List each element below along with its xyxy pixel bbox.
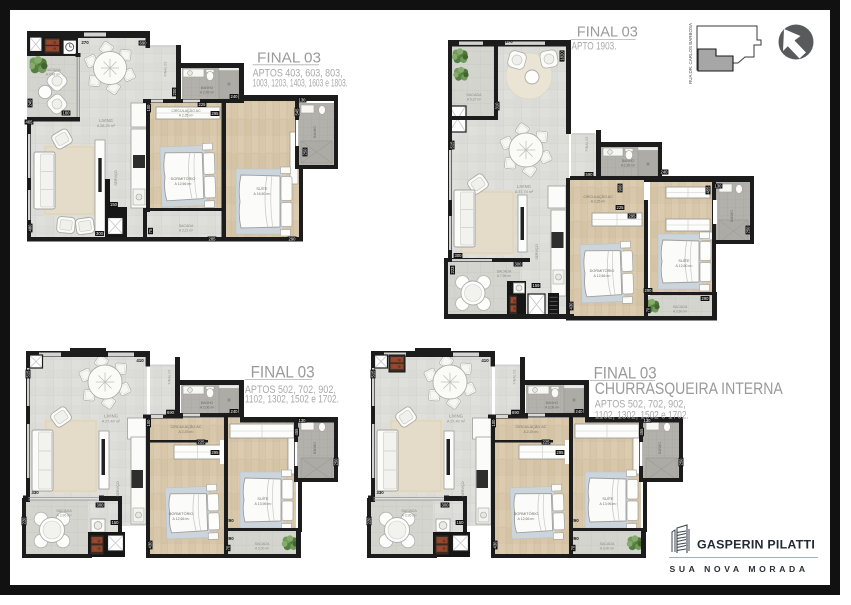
- svg-text:A 3,21 m²: A 3,21 m²: [179, 229, 194, 233]
- svg-text:SACADA: SACADA: [497, 270, 512, 274]
- svg-text:330: 330: [31, 490, 39, 495]
- svg-text:APTO 1903.: APTO 1903.: [572, 41, 617, 53]
- svg-text:LIVING: LIVING: [104, 414, 118, 419]
- svg-text:SACADA: SACADA: [401, 509, 417, 513]
- svg-text:A 12,60 m²: A 12,60 m²: [676, 264, 694, 268]
- svg-text:130: 130: [299, 98, 307, 103]
- svg-text:70: 70: [226, 545, 231, 550]
- svg-text:590: 590: [586, 172, 594, 177]
- svg-text:290: 290: [702, 296, 710, 301]
- svg-text:220: 220: [367, 517, 372, 525]
- svg-text:A 12,66 m²: A 12,66 m²: [173, 517, 191, 521]
- svg-text:430: 430: [493, 541, 498, 549]
- svg-text:70: 70: [646, 307, 651, 312]
- svg-text:295: 295: [212, 111, 220, 116]
- svg-text:LIVING: LIVING: [99, 118, 113, 123]
- svg-text:130: 130: [715, 184, 723, 189]
- svg-text:430: 430: [148, 541, 153, 549]
- svg-text:BANHO: BANHO: [313, 126, 317, 138]
- svg-text:225: 225: [617, 205, 625, 210]
- svg-text:SUA NOVA MORADA: SUA NOVA MORADA: [670, 564, 809, 574]
- svg-text:LIVING: LIVING: [449, 414, 463, 419]
- svg-text:270: 270: [505, 39, 513, 44]
- svg-text:BANHO: BANHO: [201, 86, 214, 90]
- svg-text:SACADA: SACADA: [179, 224, 194, 228]
- svg-text:FINAL 03: FINAL 03: [257, 50, 321, 67]
- svg-text:BANHO: BANHO: [622, 159, 635, 163]
- svg-text:SACADA: SACADA: [45, 68, 61, 72]
- svg-text:SERVIÇO: SERVIÇO: [535, 244, 539, 260]
- svg-text:455: 455: [639, 428, 644, 436]
- svg-text:159: 159: [533, 283, 541, 288]
- svg-text:SUÍTE: SUÍTE: [256, 187, 268, 191]
- svg-text:FINAL 03: FINAL 03: [164, 62, 168, 77]
- svg-text:290: 290: [645, 288, 653, 293]
- svg-text:290: 290: [289, 237, 297, 242]
- svg-text:FINAL 03: FINAL 03: [577, 24, 638, 41]
- svg-text:130: 130: [299, 418, 307, 423]
- svg-text:455: 455: [294, 428, 299, 436]
- svg-text:A 2,25 m²: A 2,25 m²: [524, 430, 540, 434]
- svg-text:FINAL 03: FINAL 03: [513, 370, 517, 385]
- svg-text:1003, 1203, 1403, 1603 e 1803.: 1003, 1203, 1403, 1603 e 1803.: [253, 77, 348, 89]
- svg-text:SUÍTE: SUÍTE: [257, 497, 269, 501]
- svg-text:150: 150: [110, 202, 118, 207]
- svg-text:295: 295: [629, 214, 637, 219]
- svg-text:A 4,48 m²: A 4,48 m²: [46, 73, 61, 77]
- svg-text:480: 480: [28, 224, 33, 232]
- svg-text:225: 225: [199, 102, 207, 107]
- svg-text:245: 245: [28, 99, 33, 107]
- svg-text:A 2,06 m²: A 2,06 m²: [200, 406, 215, 410]
- svg-text:300: 300: [442, 503, 450, 508]
- svg-text:A 12,66 m²: A 12,66 m²: [518, 517, 536, 521]
- svg-text:A 12,66 m²: A 12,66 m²: [175, 182, 193, 186]
- svg-text:250: 250: [746, 226, 751, 234]
- svg-text:A 16,50 m²: A 16,50 m²: [254, 192, 272, 196]
- svg-text:430: 430: [569, 302, 574, 310]
- svg-text:455: 455: [706, 186, 711, 194]
- svg-text:SERVIÇO: SERVIÇO: [461, 481, 465, 497]
- svg-text:DORMITÓRIO: DORMITÓRIO: [514, 511, 539, 516]
- svg-text:A 2,95 m²: A 2,95 m²: [200, 91, 215, 95]
- svg-text:SERVIÇO: SERVIÇO: [116, 481, 120, 497]
- svg-text:A 26,25 m²: A 26,25 m²: [97, 124, 116, 128]
- svg-text:515: 515: [26, 370, 31, 378]
- svg-text:A 27,40 m²: A 27,40 m²: [102, 419, 121, 423]
- svg-text:DORMITÓRIO: DORMITÓRIO: [590, 268, 615, 273]
- svg-text:FINAL 03: FINAL 03: [585, 137, 589, 152]
- svg-text:A 7,96 m²: A 7,96 m²: [497, 274, 512, 278]
- svg-text:300: 300: [455, 253, 463, 258]
- svg-text:100: 100: [146, 104, 151, 112]
- svg-text:LIVING: LIVING: [517, 184, 531, 189]
- svg-text:FINAL 03: FINAL 03: [168, 370, 172, 385]
- svg-text:290: 290: [226, 536, 234, 541]
- svg-text:A 3,96 m²: A 3,96 m²: [402, 514, 418, 518]
- svg-text:BANHO: BANHO: [313, 442, 317, 454]
- svg-text:BANHO: BANHO: [730, 210, 734, 222]
- svg-text:CIRCULAÇÃO AC: CIRCULAÇÃO AC: [583, 194, 613, 199]
- svg-text:FINAL 03: FINAL 03: [251, 363, 315, 381]
- svg-text:180: 180: [63, 111, 71, 116]
- svg-text:223: 223: [450, 266, 455, 274]
- svg-text:240: 240: [231, 409, 239, 414]
- svg-text:220: 220: [22, 517, 27, 525]
- svg-text:250: 250: [334, 458, 339, 466]
- svg-text:310: 310: [495, 102, 500, 110]
- svg-text:1102, 1302, 1502 e 1702.: 1102, 1302, 1502 e 1702.: [245, 394, 339, 406]
- svg-text:75: 75: [148, 228, 153, 233]
- svg-text:270: 270: [81, 40, 89, 45]
- svg-text:A 2,00 m²: A 2,00 m²: [600, 547, 615, 551]
- svg-text:225: 225: [543, 440, 551, 445]
- svg-text:1820: 1820: [560, 51, 565, 61]
- svg-text:SUÍTE: SUÍTE: [602, 497, 614, 501]
- svg-text:A 37,74 m²: A 37,74 m²: [515, 190, 534, 194]
- svg-text:900: 900: [618, 184, 623, 192]
- svg-text:410: 410: [136, 358, 144, 363]
- svg-text:A 3,96 m²: A 3,96 m²: [57, 514, 73, 518]
- svg-text:BANHO: BANHO: [201, 401, 214, 405]
- svg-text:SUÍTE: SUÍTE: [678, 259, 690, 263]
- svg-text:A 3,60 m²: A 3,60 m²: [673, 310, 688, 314]
- svg-text:A 2,25 m²: A 2,25 m²: [179, 430, 195, 434]
- svg-text:515: 515: [371, 370, 376, 378]
- svg-text:BANHO: BANHO: [546, 401, 559, 405]
- svg-text:A 2,95 m²: A 2,95 m²: [621, 164, 636, 168]
- svg-text:RUA DR. CARLOS BARBOSA: RUA DR. CARLOS BARBOSA: [688, 23, 693, 84]
- svg-text:A 2,25 m²: A 2,25 m²: [591, 200, 606, 204]
- svg-text:285: 285: [209, 237, 217, 242]
- svg-text:A 12,66 m²: A 12,66 m²: [594, 274, 612, 278]
- svg-text:A 2,35 m²: A 2,35 m²: [179, 114, 194, 118]
- svg-text:BANHO: BANHO: [658, 442, 662, 454]
- svg-text:70: 70: [571, 545, 576, 550]
- svg-text:240: 240: [231, 94, 239, 99]
- svg-text:250: 250: [679, 458, 684, 466]
- svg-text:295: 295: [212, 450, 220, 455]
- svg-text:SACADA: SACADA: [56, 509, 72, 513]
- svg-text:290: 290: [226, 518, 234, 523]
- svg-text:690: 690: [140, 41, 148, 46]
- svg-text:300: 300: [96, 231, 104, 236]
- svg-text:330: 330: [376, 490, 384, 495]
- svg-text:A 2,06 m²: A 2,06 m²: [545, 406, 560, 410]
- svg-text:1102, 1302, 1502 e 1702.: 1102, 1302, 1502 e 1702.: [595, 409, 689, 421]
- svg-text:SACADA: SACADA: [600, 542, 615, 546]
- svg-text:100: 100: [491, 419, 496, 427]
- svg-text:CIRCULAÇÃO AC: CIRCULAÇÃO AC: [515, 424, 546, 429]
- svg-text:CIRCULAÇÃO AC: CIRCULAÇÃO AC: [171, 108, 201, 113]
- svg-text:150: 150: [457, 520, 465, 525]
- svg-text:225: 225: [198, 440, 206, 445]
- svg-text:690: 690: [167, 410, 175, 415]
- svg-text:A 13,96 m²: A 13,96 m²: [255, 502, 273, 506]
- svg-text:SACADA: SACADA: [673, 305, 688, 309]
- svg-text:SACADA: SACADA: [466, 93, 482, 97]
- svg-text:690: 690: [512, 410, 520, 415]
- svg-text:545: 545: [295, 108, 300, 116]
- svg-text:A 2,00 m²: A 2,00 m²: [255, 547, 270, 551]
- svg-text:CIRCULAÇÃO AC: CIRCULAÇÃO AC: [170, 424, 201, 429]
- svg-text:A 5,27 m²: A 5,27 m²: [467, 98, 482, 102]
- svg-text:250: 250: [303, 148, 308, 156]
- svg-text:DORMITÓRIO: DORMITÓRIO: [171, 176, 196, 181]
- svg-text:290: 290: [571, 536, 579, 541]
- svg-text:A 13,96 m²: A 13,96 m²: [600, 502, 618, 506]
- svg-text:240: 240: [661, 170, 669, 175]
- svg-text:515: 515: [450, 141, 455, 149]
- svg-text:200: 200: [172, 88, 177, 96]
- svg-text:295: 295: [557, 450, 565, 455]
- svg-text:GASPERIN PILATTI: GASPERIN PILATTI: [697, 538, 815, 552]
- svg-text:300: 300: [97, 503, 105, 508]
- svg-text:150: 150: [112, 520, 120, 525]
- svg-text:SERVIÇO: SERVIÇO: [114, 170, 118, 186]
- svg-text:180: 180: [488, 39, 496, 44]
- svg-text:465: 465: [26, 120, 34, 125]
- svg-text:100: 100: [146, 419, 151, 427]
- svg-text:A 27,40 m²: A 27,40 m²: [447, 419, 466, 423]
- svg-text:DORMITÓRIO: DORMITÓRIO: [169, 511, 194, 516]
- svg-text:290: 290: [571, 518, 579, 523]
- svg-text:410: 410: [481, 358, 489, 363]
- svg-text:240: 240: [576, 409, 584, 414]
- svg-text:CHURRASQUEIRA INTERNA: CHURRASQUEIRA INTERNA: [595, 380, 783, 398]
- svg-text:300: 300: [515, 262, 523, 267]
- svg-text:SACADA: SACADA: [255, 542, 270, 546]
